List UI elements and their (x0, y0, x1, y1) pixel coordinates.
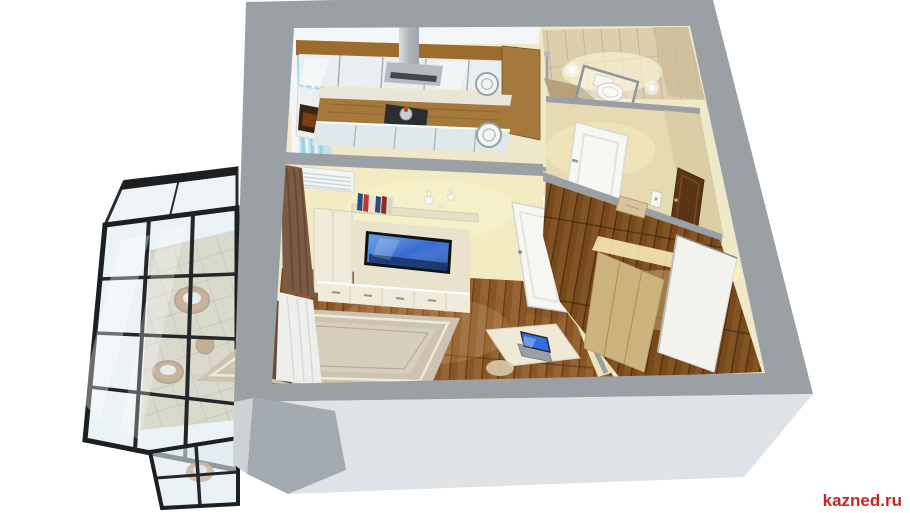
wall-sconce (645, 81, 659, 95)
balcony (80, 167, 238, 508)
kettle (400, 108, 412, 120)
floorplan-canvas: kazned.ru (0, 0, 910, 513)
wall-front-faces (233, 394, 813, 494)
desk-chair (486, 360, 514, 376)
intercom (650, 190, 662, 208)
door-handle (674, 198, 678, 202)
door-handle (518, 250, 522, 254)
balcony-lower-section (150, 438, 238, 508)
wall-sconce (565, 63, 579, 77)
watermark: kazned.ru (823, 491, 902, 510)
apartment-render: kazned.ru (0, 0, 910, 513)
door-handle (572, 160, 578, 162)
